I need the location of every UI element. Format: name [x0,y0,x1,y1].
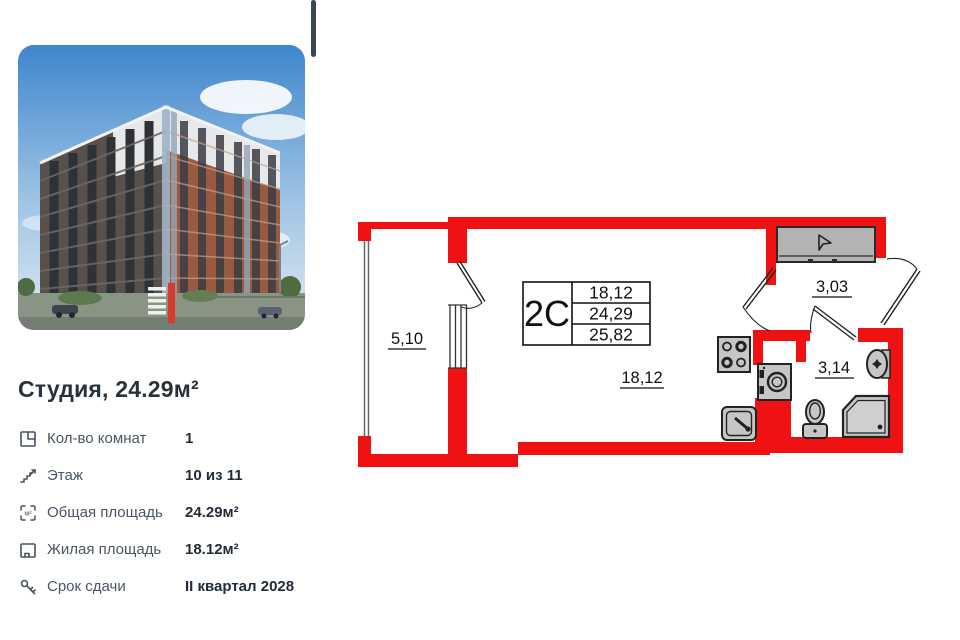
stairs-icon [18,466,38,486]
detail-label: Срок сдачи [47,578,126,595]
detail-label: Этаж [47,467,83,484]
key-icon [18,577,38,597]
detail-row-rooms: Кол-во комнат 1 [18,428,318,449]
rooms-icon [18,429,38,449]
detail-label: Кол-во комнат [47,430,146,447]
detail-value: II квартал 2028 [185,578,294,595]
room-hall-door [743,268,776,331]
stove-icon [718,337,750,372]
listing-page: Студия, 24.29м² Кол-во комнат 1 Этаж 10 … [0,0,960,640]
hallway-area-label: 3,03 [816,278,848,296]
detail-label: Общая площадь [47,504,163,521]
svg-text:м²: м² [24,508,32,517]
detail-row-living-area: Жилая площадь 18.12м² [18,539,318,560]
detail-value: 18.12м² [185,541,239,558]
scrollbar-thumb[interactable] [311,0,316,57]
detail-row-floor: Этаж 10 из 11 [18,465,318,486]
page-title: Студия, 24.29м² [18,376,318,403]
bathroom-door [811,306,857,340]
balcony-window [448,305,467,368]
detail-value: 24.29м² [185,504,239,521]
detail-row-total-area: м² Общая площадь 24.29м² [18,502,318,523]
washing-machine-icon [758,364,791,400]
unit-type-label: 2С [524,293,570,334]
area-with-balcony-value: 25,82 [589,325,633,345]
wardrobe-icon [777,227,875,262]
total-area-icon: м² [18,503,38,523]
bathroom-area-label: 3,14 [818,359,850,377]
detail-label: Жилая площадь [47,541,161,558]
detail-row-deadline: Срок сдачи II квартал 2028 [18,576,318,597]
balcony-area-label: 5,10 [391,330,423,348]
washbasin-icon [867,350,890,378]
building-photo[interactable] [18,45,305,330]
details-list: Кол-во комнат 1 Этаж 10 из 11 м² Общая п… [18,428,318,597]
kitchen-sink-icon [722,407,756,440]
balcony-glazing [365,241,369,436]
living-area-icon [18,540,38,560]
area-living-value: 18,12 [589,283,633,303]
entrance-door [881,258,920,325]
balcony-door [457,262,485,309]
detail-value: 1 [185,430,193,447]
floor-plan: 2С 18,12 24,29 25,82 5,10 18,12 3,03 3,1… [340,190,960,490]
toilet-icon [803,400,827,438]
detail-value: 10 из 11 [185,467,243,484]
main-room-area-label: 18,12 [621,369,662,387]
shower-icon [843,396,889,437]
area-total-value: 24,29 [589,304,633,324]
